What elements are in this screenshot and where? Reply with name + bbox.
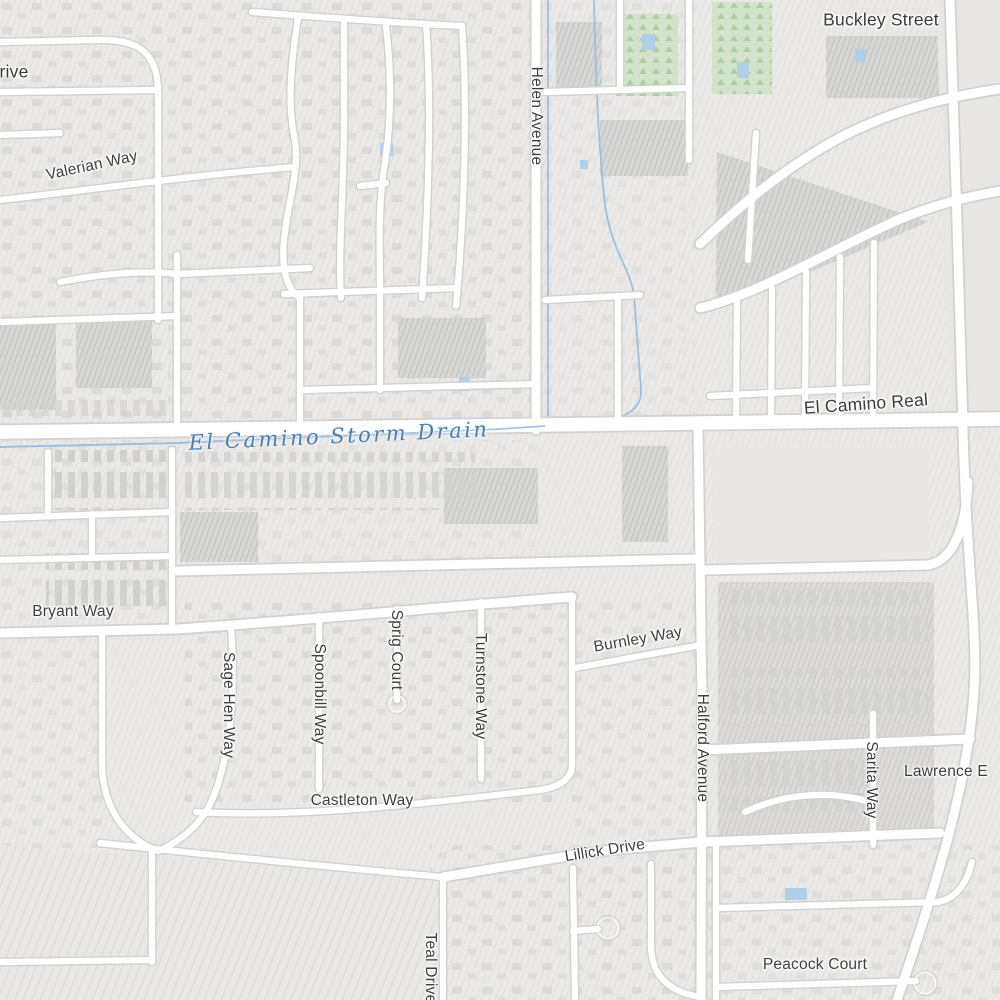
map-graphics: [0, 0, 1000, 1000]
street-label-partial-drive: rive: [0, 62, 29, 83]
street-label-sprig-court: Sprig Court: [387, 610, 405, 691]
map-canvas[interactable]: rive Valerian Way Helen Avenue Buckley S…: [0, 0, 1000, 1000]
street-label-teal-drive: Teal Drive: [421, 933, 439, 1000]
street-label-helen-avenue: Helen Avenue: [527, 67, 545, 166]
street-label-peacock-court: Peacock Court: [763, 956, 867, 974]
street-label-halford-avenue: Halford Avenue: [693, 694, 711, 803]
street-label-lawrence-partial: Lawrence E: [904, 763, 988, 781]
street-label-buckley-street: Buckley Street: [823, 10, 939, 31]
street-label-sage-hen-way: Sage Hen Way: [219, 652, 237, 758]
street-label-bryant-way: Bryant Way: [32, 603, 114, 621]
street-label-castleton-way: Castleton Way: [311, 792, 414, 810]
street-label-turnstone-way: Turnstone Way: [471, 633, 489, 740]
street-label-spoonbill-way: Spoonbill Way: [310, 643, 328, 744]
street-label-sarita-way: Sarita Way: [862, 741, 880, 818]
